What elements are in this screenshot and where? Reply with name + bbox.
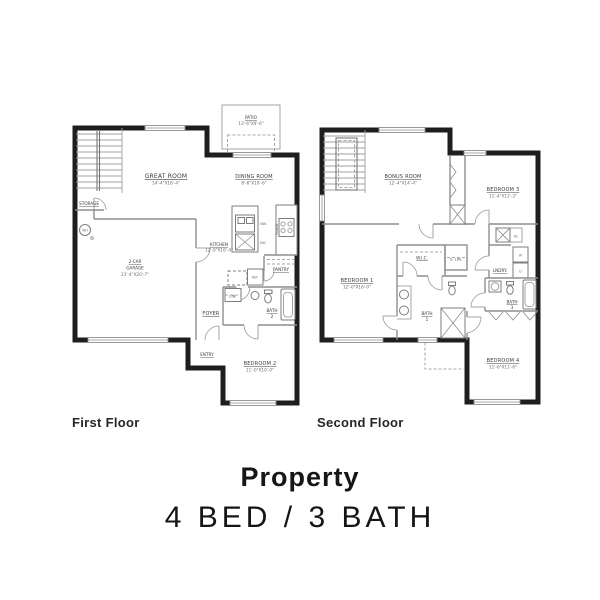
great-room-dims: 14'-4"X16'-4" [152, 181, 180, 186]
dishwasher-label: DW [260, 241, 266, 245]
bed-bath-subtitle: 4 BED / 3 BATH [0, 501, 600, 535]
patio: PATIO 13'-6"X9'-6" [222, 105, 280, 154]
bath1-label-2: 1 [426, 317, 429, 322]
bath2-label-2: 2 [271, 314, 274, 319]
sink-label: SNK [260, 222, 267, 226]
patio-dims: 13'-6"X9'-6" [238, 121, 263, 126]
storage-label: STORAGE [79, 201, 99, 206]
garage-dims: 23'-4"X20'-7" [121, 272, 149, 277]
laundry-label: LNDRY. [493, 268, 507, 273]
property-title: Property [0, 462, 600, 493]
bath2-label-1: BATH [266, 308, 277, 313]
ac-label: AC [514, 235, 519, 239]
kitchen-label: KITCHEN [210, 242, 228, 247]
bedroom1-label: BEDROOM 1 [341, 278, 374, 284]
bonus-room-label: BONUS ROOM [384, 174, 421, 180]
patio-label: PATIO [245, 115, 258, 120]
slin-label: S. LIN. [450, 257, 462, 262]
great-room-label: GREAT ROOM [145, 173, 188, 180]
bedroom4-label: BEDROOM 4 [487, 358, 520, 364]
dining-room-dims: 8'-6"X10'-6" [241, 181, 266, 186]
entry-door-opening [195, 338, 219, 342]
entry-label: ENTRY [200, 352, 214, 357]
bath3-label-1: BATH [506, 300, 517, 305]
bath1-label-1: BATH [421, 311, 432, 316]
wic-label: W.I.C. [416, 256, 428, 261]
garage-label-1: 2-CAR [129, 259, 142, 264]
first-floor-plan: PATIO 13'-6"X9'-6" STORAGE WH 2-CAR GARA… [68, 98, 308, 410]
first-floor-caption: First Floor [72, 415, 140, 430]
bedroom3-label: BEDROOM 3 [487, 187, 520, 193]
dining-room-label: DINING ROOM [235, 174, 273, 180]
bedroom1-dims: 12'-0"X16'-0" [343, 285, 371, 290]
bonus-room-dims: 12'-4"X14'-4" [389, 181, 417, 186]
linen-label: LIN. [229, 294, 236, 299]
second-floor-plan: BONUS ROOM 12'-4"X14'-4" BEDROOM 3 11'-4… [315, 98, 555, 410]
bedroom4-dims: 11'-6"X11'-6" [489, 365, 517, 370]
bedroom3-dims: 11'-4"X12'-3" [489, 194, 517, 199]
bedroom2-dims: 11'-0"X10'-0" [246, 368, 274, 373]
pantry-label: PANTRY [273, 267, 289, 272]
refrigerator-label: REF [252, 276, 258, 280]
range-label: RANGE [275, 223, 279, 234]
garage-label-2: GARAGE [126, 266, 144, 271]
foyer-label: FOYER [202, 311, 220, 317]
kitchen-dims: 12'-9"X16'-4" [205, 248, 233, 253]
refrigerator: REF [228, 269, 263, 285]
water-heater-label: WH [82, 229, 88, 233]
second-floor-caption: Second Floor [317, 415, 404, 430]
bath3-label-2: 3 [511, 305, 514, 310]
roofline-dashed [425, 343, 465, 370]
bedroom2-label: BEDROOM 2 [244, 361, 277, 367]
